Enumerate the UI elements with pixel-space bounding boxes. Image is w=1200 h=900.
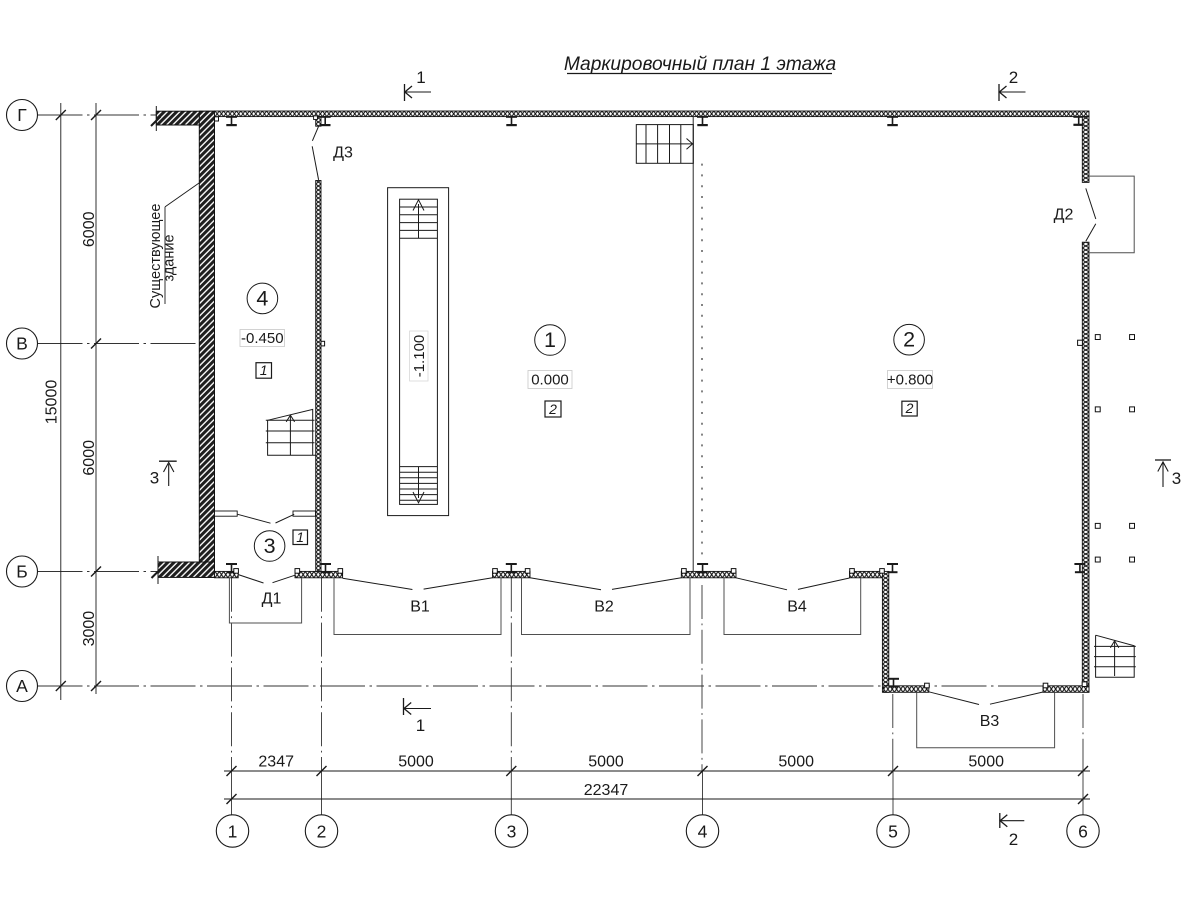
svg-text:здание: здание bbox=[162, 234, 178, 281]
svg-text:2: 2 bbox=[903, 328, 915, 352]
svg-text:+0.800: +0.800 bbox=[887, 372, 933, 389]
svg-text:5000: 5000 bbox=[588, 754, 624, 771]
svg-text:-0.450: -0.450 bbox=[241, 330, 284, 347]
svg-text:3: 3 bbox=[1172, 469, 1181, 488]
svg-text:В2: В2 bbox=[594, 599, 614, 616]
svg-text:3: 3 bbox=[507, 822, 517, 842]
svg-text:1: 1 bbox=[260, 362, 268, 378]
svg-text:Д3: Д3 bbox=[333, 145, 353, 162]
svg-text:6000: 6000 bbox=[81, 211, 98, 247]
svg-text:1: 1 bbox=[296, 529, 304, 545]
svg-text:1: 1 bbox=[416, 716, 425, 735]
svg-text:5000: 5000 bbox=[968, 754, 1004, 771]
svg-text:4: 4 bbox=[698, 822, 708, 842]
svg-text:1: 1 bbox=[416, 68, 425, 87]
svg-text:Д2: Д2 bbox=[1054, 207, 1074, 224]
svg-text:5000: 5000 bbox=[778, 754, 814, 771]
svg-text:6: 6 bbox=[1078, 822, 1088, 842]
svg-text:2: 2 bbox=[317, 822, 327, 842]
svg-text:3000: 3000 bbox=[81, 611, 98, 647]
svg-text:22347: 22347 bbox=[584, 782, 629, 799]
svg-text:3: 3 bbox=[264, 534, 276, 558]
svg-text:3: 3 bbox=[150, 469, 159, 488]
svg-text:0.000: 0.000 bbox=[531, 372, 569, 389]
svg-text:2: 2 bbox=[1009, 830, 1018, 849]
svg-text:Б: Б bbox=[16, 562, 27, 582]
svg-text:5000: 5000 bbox=[398, 754, 434, 771]
svg-text:15000: 15000 bbox=[44, 380, 61, 425]
svg-text:В: В bbox=[16, 334, 28, 354]
svg-text:-1.100: -1.100 bbox=[411, 335, 428, 378]
svg-text:А: А bbox=[16, 676, 28, 696]
svg-text:1: 1 bbox=[544, 328, 556, 352]
svg-text:2: 2 bbox=[905, 400, 914, 416]
svg-text:2: 2 bbox=[1009, 68, 1018, 87]
svg-text:1: 1 bbox=[228, 822, 238, 842]
svg-text:4: 4 bbox=[256, 287, 268, 311]
svg-text:2: 2 bbox=[548, 401, 557, 417]
svg-text:В4: В4 bbox=[787, 599, 807, 616]
svg-text:В1: В1 bbox=[410, 599, 430, 616]
svg-text:В3: В3 bbox=[980, 713, 1000, 730]
svg-text:6000: 6000 bbox=[81, 440, 98, 476]
svg-text:Д1: Д1 bbox=[262, 591, 282, 608]
svg-text:Г: Г bbox=[17, 105, 27, 125]
svg-text:5: 5 bbox=[888, 822, 898, 842]
svg-text:2347: 2347 bbox=[258, 754, 294, 771]
svg-text:Маркировочный план 1 этажа: Маркировочный план 1 этажа bbox=[564, 54, 837, 75]
